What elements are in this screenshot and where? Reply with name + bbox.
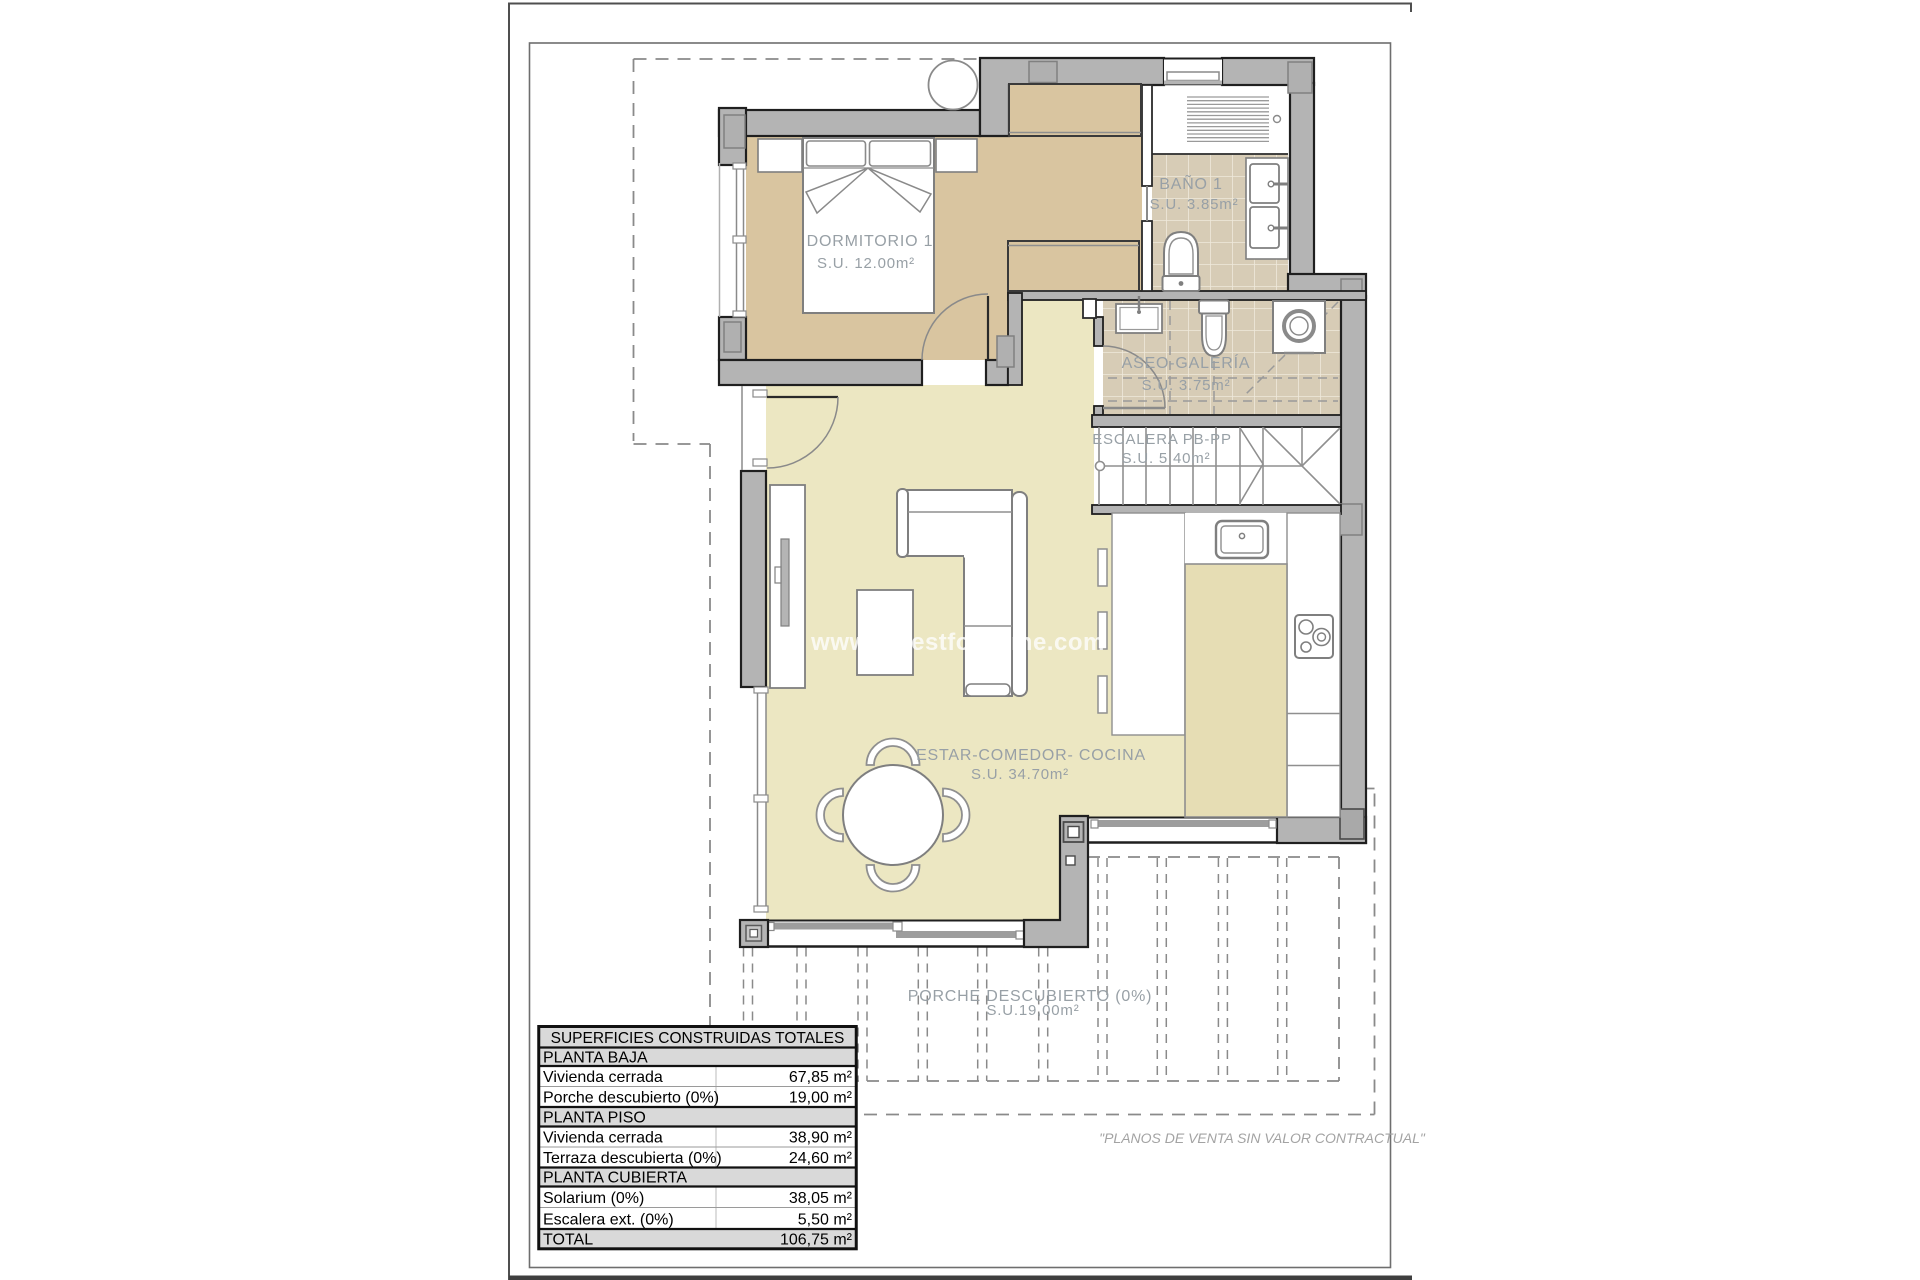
- svg-text:Solarium (0%): Solarium (0%): [543, 1190, 644, 1207]
- svg-text:38,90 m²: 38,90 m²: [789, 1130, 853, 1147]
- svg-text:S.U. 5.40m²: S.U. 5.40m²: [1122, 450, 1211, 467]
- svg-text:24,60 m²: 24,60 m²: [789, 1150, 853, 1167]
- svg-text:106,75 m²: 106,75 m²: [780, 1232, 853, 1249]
- svg-text:TOTAL: TOTAL: [543, 1232, 593, 1249]
- svg-text:ASEO-GALERÍA: ASEO-GALERÍA: [1122, 353, 1251, 372]
- svg-text:S.U. 34.70m²: S.U. 34.70m²: [971, 766, 1069, 783]
- svg-text:BAÑO 1: BAÑO 1: [1159, 173, 1223, 193]
- svg-text:Escalera ext. (0%): Escalera ext. (0%): [543, 1212, 674, 1229]
- svg-text:S.U. 3.75m²: S.U. 3.75m²: [1142, 377, 1231, 394]
- svg-text:5,50 m²: 5,50 m²: [798, 1212, 853, 1229]
- svg-text:S.U. 3.85m²: S.U. 3.85m²: [1150, 196, 1239, 213]
- svg-text:ESTAR-COMEDOR- COCINA: ESTAR-COMEDOR- COCINA: [916, 747, 1146, 764]
- svg-text:www.investforhome.com: www.investforhome.com: [810, 629, 1105, 656]
- svg-text:S.U.19,00m²: S.U.19,00m²: [987, 1002, 1080, 1019]
- svg-text:PLANTA BAJA: PLANTA BAJA: [543, 1050, 648, 1067]
- svg-text:"PLANOS DE VENTA SIN VALOR CON: "PLANOS DE VENTA SIN VALOR CONTRACTUAL": [1099, 1130, 1426, 1146]
- svg-text:38,05 m²: 38,05 m²: [789, 1190, 853, 1207]
- svg-text:PLANTA CUBIERTA: PLANTA CUBIERTA: [543, 1170, 687, 1187]
- svg-text:Vivienda cerrada: Vivienda cerrada: [543, 1069, 663, 1086]
- svg-text:PLANTA PISO: PLANTA PISO: [543, 1110, 646, 1127]
- svg-text:19,00 m²: 19,00 m²: [789, 1090, 853, 1107]
- svg-text:67,85 m²: 67,85 m²: [789, 1069, 853, 1086]
- svg-text:SUPERFICIES CONSTRUIDAS TOTALE: SUPERFICIES CONSTRUIDAS TOTALES: [551, 1030, 845, 1047]
- svg-text:DORMITORIO 1: DORMITORIO 1: [807, 233, 934, 250]
- svg-text:Vivienda cerrada: Vivienda cerrada: [543, 1130, 663, 1147]
- svg-text:Porche descubierto (0%): Porche descubierto (0%): [543, 1090, 719, 1107]
- svg-text:Terraza descubierta (0%): Terraza descubierta (0%): [543, 1150, 722, 1167]
- svg-text:ESCALERA PB-PP: ESCALERA PB-PP: [1092, 431, 1232, 448]
- svg-text:S.U. 12.00m²: S.U. 12.00m²: [817, 255, 915, 272]
